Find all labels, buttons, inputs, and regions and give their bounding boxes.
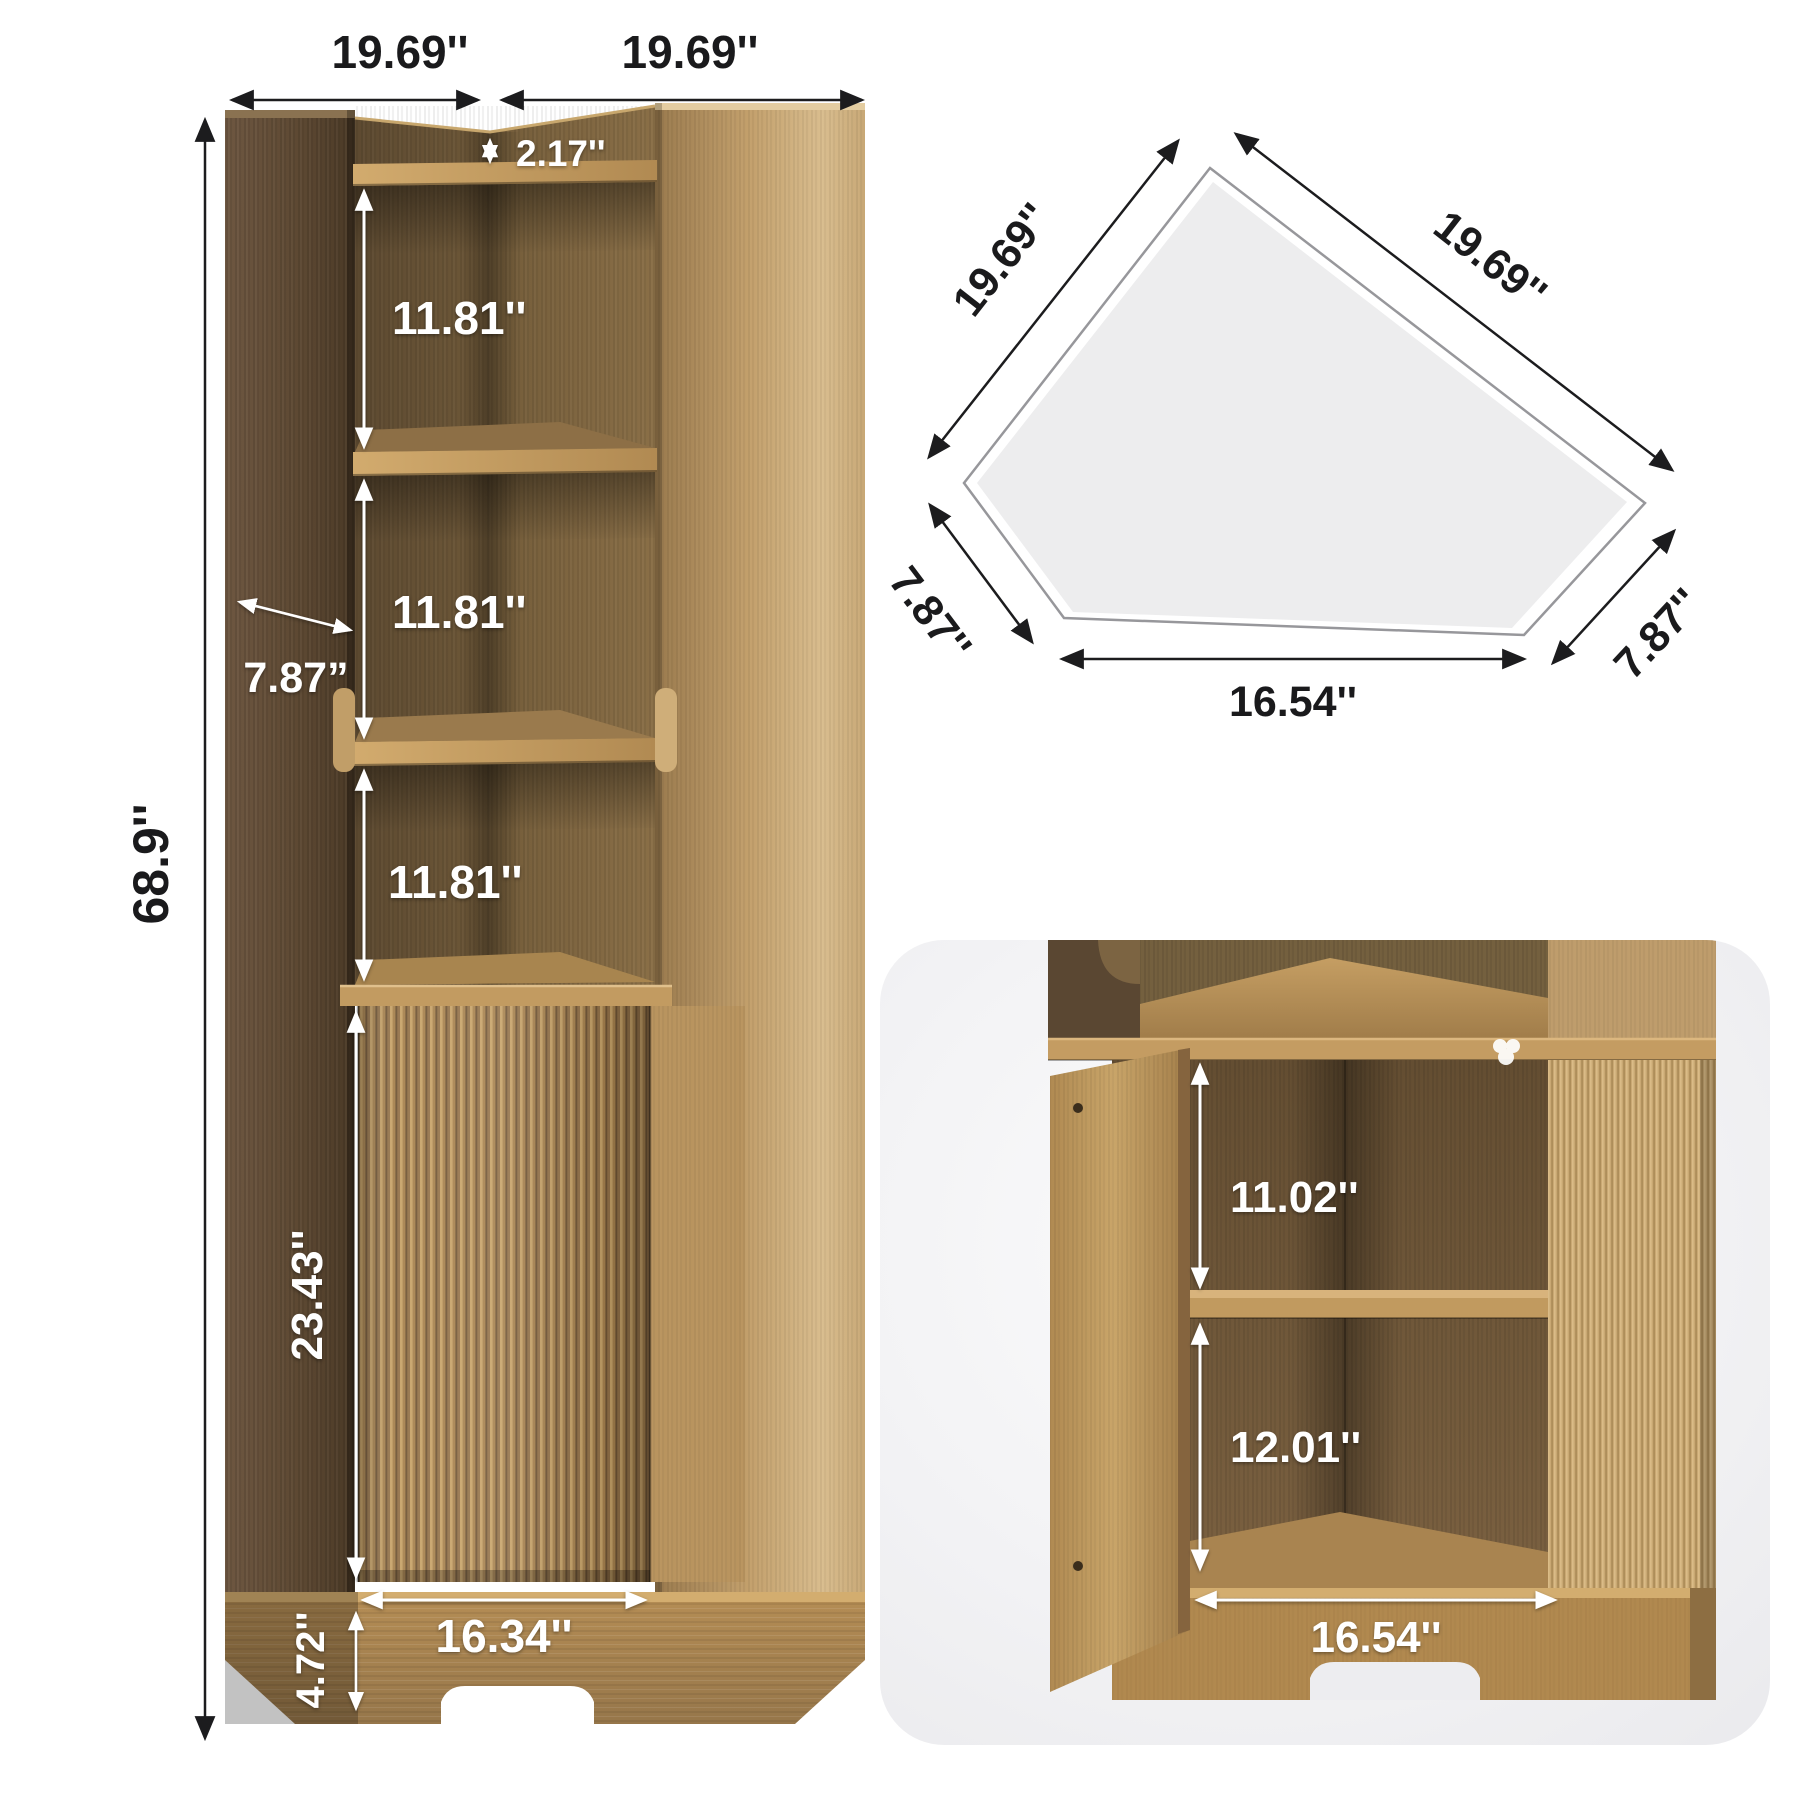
dim-door-height-label: 23.43'' [283, 1229, 332, 1360]
lower-top-seam [340, 985, 672, 1006]
corner-cabinet-photo [225, 103, 865, 1724]
dim-top-width-right-label: 19.69'' [622, 26, 759, 78]
plan-back-right-label: 19.69'' [1425, 202, 1555, 319]
dim-door-width-label: 16.34'' [436, 1610, 573, 1662]
door-hinge-hole [1073, 1103, 1083, 1113]
plan-front-right-label: 7.87'' [1605, 580, 1711, 689]
plan-front-left-label: 7.87'' [880, 558, 981, 670]
dim-shelf-1-label: 11.81'' [392, 292, 526, 344]
plan-back-left-label: 19.69'' [944, 195, 1061, 325]
right-handle-notch [655, 688, 677, 772]
footprint-shape [964, 168, 1645, 635]
product-dimension-image: 19.69'' 19.69'' 68.9'' 2.17'' 11.81'' 11… [0, 0, 1800, 1800]
top-plan-view: 19.69'' 19.69'' 7.87'' 7.87'' 16.54'' [880, 70, 1780, 750]
detail-foot-cutout [1310, 1662, 1480, 1700]
base-foot-cutout [441, 1686, 594, 1724]
dim-shelf-3-label: 11.81'' [388, 856, 522, 908]
detail-right-panel [1548, 1060, 1716, 1646]
dim-top-width-left-label: 19.69'' [332, 26, 469, 78]
open-door-cabinet-photo [1048, 940, 1716, 1700]
dim-compartment-width-label: 16.54'' [1310, 1613, 1441, 1662]
plan-front-width-label: 16.54'' [1229, 678, 1357, 726]
dim-upper-compartment-label: 11.02'' [1230, 1173, 1359, 1222]
dim-total-height-label: 68.9'' [123, 803, 179, 924]
dim-shelf-2-label: 11.81'' [392, 586, 526, 638]
dim-base-height-label: 4.72'' [289, 1612, 333, 1709]
open-door-detail-view: 11.02'' 12.01'' 16.54'' [860, 920, 1790, 1780]
dim-depth-label: 7.87” [243, 654, 348, 702]
dim-lower-compartment-label: 12.01'' [1230, 1423, 1361, 1472]
dim-top-gap-label: 2.17'' [516, 133, 606, 174]
main-front-view: 19.69'' 19.69'' 68.9'' 2.17'' 11.81'' 11… [0, 0, 1000, 1800]
